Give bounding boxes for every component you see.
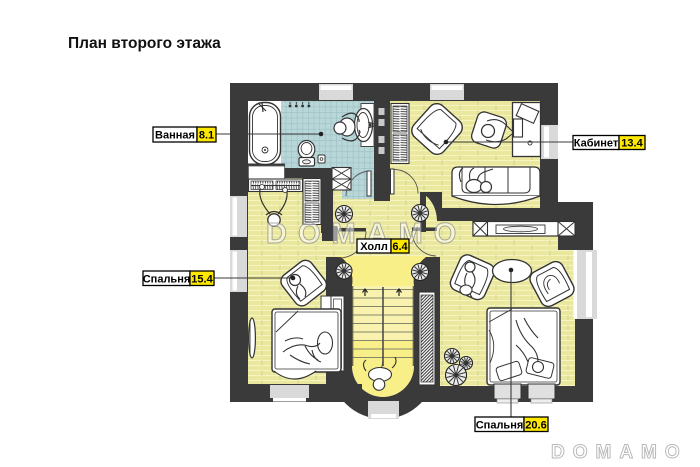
svg-text:DOMAMO: DOMAMO	[551, 442, 688, 463]
svg-text:6.4: 6.4	[392, 241, 408, 253]
svg-text:15.4: 15.4	[191, 274, 213, 286]
svg-text:Кабинет: Кабинет	[574, 138, 619, 150]
svg-text:13.4: 13.4	[621, 138, 643, 150]
svg-text:20.6: 20.6	[525, 420, 546, 432]
svg-text:8.1: 8.1	[199, 130, 214, 142]
svg-text:Спальня: Спальня	[143, 274, 191, 286]
svg-text:Ванная: Ванная	[155, 130, 195, 142]
svg-text:Холл: Холл	[360, 241, 388, 253]
svg-text:Спальня: Спальня	[476, 420, 524, 432]
svg-text:План второго этажа: План второго этажа	[68, 35, 221, 52]
